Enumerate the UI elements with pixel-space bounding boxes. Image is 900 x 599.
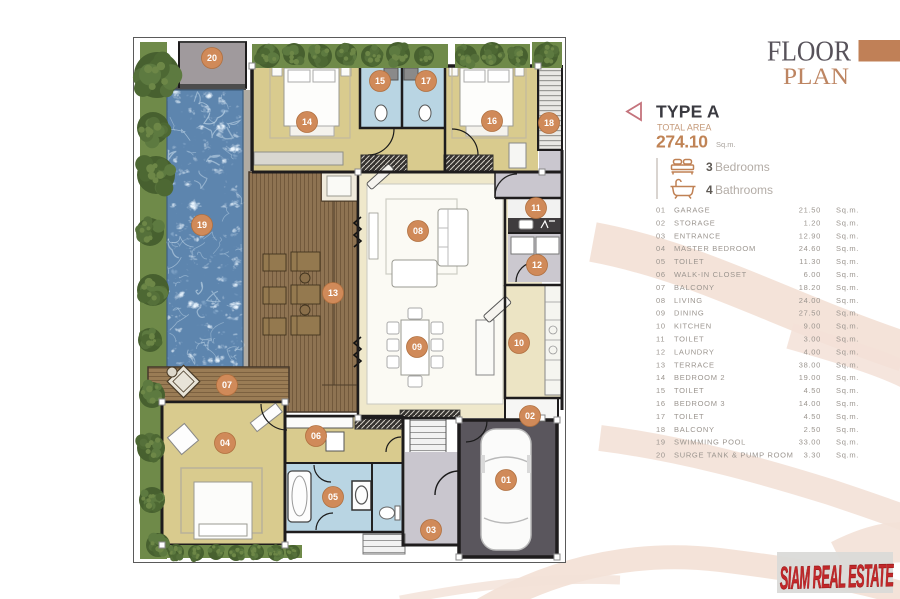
svg-text:12.90: 12.90	[799, 231, 821, 240]
svg-text:01: 01	[656, 206, 666, 215]
svg-text:16: 16	[656, 399, 666, 408]
svg-text:3.30: 3.30	[804, 451, 821, 460]
svg-text:Sq.m.: Sq.m.	[836, 296, 859, 305]
svg-text:TOILET: TOILET	[674, 335, 704, 344]
svg-text:33.00: 33.00	[799, 438, 821, 447]
svg-text:Bedrooms: Bedrooms	[715, 160, 770, 174]
svg-text:SWIMMING POOL: SWIMMING POOL	[674, 438, 746, 447]
svg-text:02: 02	[525, 411, 535, 421]
svg-text:Sq.m.: Sq.m.	[836, 412, 859, 421]
svg-text:05: 05	[328, 492, 338, 502]
svg-text:24.60: 24.60	[799, 244, 821, 253]
svg-text:Sq.m.: Sq.m.	[836, 347, 859, 356]
svg-text:03: 03	[426, 525, 436, 535]
svg-text:16: 16	[487, 116, 497, 126]
svg-text:GARAGE: GARAGE	[674, 206, 710, 215]
svg-text:09: 09	[656, 309, 666, 318]
svg-text:Bathrooms: Bathrooms	[715, 183, 773, 197]
svg-text:TERRACE: TERRACE	[674, 360, 715, 369]
svg-text:09: 09	[412, 342, 422, 352]
svg-text:Sq.m.: Sq.m.	[836, 322, 859, 331]
svg-text:07: 07	[656, 283, 666, 292]
svg-text:TOILET: TOILET	[674, 412, 704, 421]
svg-text:TOILET: TOILET	[674, 386, 704, 395]
svg-text:BEDROOM 3: BEDROOM 3	[674, 399, 725, 408]
svg-text:9.00: 9.00	[804, 322, 821, 331]
svg-text:6.00: 6.00	[804, 270, 821, 279]
svg-text:14: 14	[656, 373, 666, 382]
svg-text:01: 01	[501, 475, 511, 485]
svg-text:18: 18	[656, 425, 666, 434]
svg-text:20: 20	[207, 53, 217, 63]
svg-text:PLAN: PLAN	[783, 64, 849, 89]
svg-text:Sq.m.: Sq.m.	[836, 244, 859, 253]
svg-text:04: 04	[220, 438, 230, 448]
svg-text:TOILET: TOILET	[674, 257, 704, 266]
svg-text:13: 13	[328, 288, 338, 298]
svg-text:17: 17	[421, 76, 431, 86]
svg-text:1.20: 1.20	[804, 218, 821, 227]
svg-text:4.50: 4.50	[804, 412, 821, 421]
svg-text:18.20: 18.20	[799, 283, 821, 292]
svg-text:LAUNDRY: LAUNDRY	[674, 347, 715, 356]
svg-text:BALCONY: BALCONY	[674, 425, 715, 434]
svg-text:19: 19	[197, 220, 207, 230]
svg-text:18: 18	[544, 118, 554, 128]
svg-text:21.50: 21.50	[799, 206, 821, 215]
svg-text:Sq.m.: Sq.m.	[836, 386, 859, 395]
svg-text:LIVING: LIVING	[674, 296, 703, 305]
svg-text:05: 05	[656, 257, 666, 266]
svg-text:27.50: 27.50	[799, 309, 821, 318]
svg-text:12: 12	[532, 260, 542, 270]
svg-text:Sq.m.: Sq.m.	[836, 360, 859, 369]
svg-text:ENTRANCE: ENTRANCE	[674, 231, 721, 240]
svg-text:2.50: 2.50	[804, 425, 821, 434]
svg-text:15: 15	[375, 76, 385, 86]
svg-text:MASTER BEDROOM: MASTER BEDROOM	[674, 244, 756, 253]
svg-text:14.00: 14.00	[799, 399, 821, 408]
svg-text:WALK-IN CLOSET: WALK-IN CLOSET	[674, 270, 747, 279]
svg-text:Sq.m.: Sq.m.	[836, 425, 859, 434]
svg-text:11: 11	[656, 335, 665, 344]
svg-text:20: 20	[656, 451, 666, 460]
svg-text:FLOOR: FLOOR	[767, 36, 852, 68]
svg-text:Sq.m.: Sq.m.	[836, 231, 859, 240]
svg-text:DINING: DINING	[674, 309, 704, 318]
svg-text:Sq.m.: Sq.m.	[716, 140, 736, 149]
svg-text:STORAGE: STORAGE	[674, 218, 715, 227]
svg-text:Sq.m.: Sq.m.	[836, 257, 859, 266]
svg-text:17: 17	[656, 412, 666, 421]
svg-text:07: 07	[222, 380, 232, 390]
svg-text:Sq.m.: Sq.m.	[836, 309, 859, 318]
svg-text:274.10: 274.10	[656, 132, 708, 152]
svg-text:Sq.m.: Sq.m.	[836, 270, 859, 279]
svg-text:3: 3	[706, 160, 713, 174]
svg-text:14: 14	[302, 117, 312, 127]
svg-text:Sq.m.: Sq.m.	[836, 218, 859, 227]
svg-text:19: 19	[656, 438, 666, 447]
svg-text:KITCHEN: KITCHEN	[674, 322, 712, 331]
svg-text:BALCONY: BALCONY	[674, 283, 715, 292]
svg-text:08: 08	[413, 226, 423, 236]
svg-text:Sq.m.: Sq.m.	[836, 373, 859, 382]
svg-text:24.00: 24.00	[799, 296, 821, 305]
svg-text:19.00: 19.00	[799, 373, 821, 382]
svg-text:10: 10	[656, 322, 666, 331]
svg-text:15: 15	[656, 386, 666, 395]
svg-text:06: 06	[656, 270, 666, 279]
svg-text:3.00: 3.00	[804, 335, 821, 344]
svg-text:TYPE A: TYPE A	[656, 102, 720, 122]
svg-text:04: 04	[656, 244, 666, 253]
svg-text:Sq.m.: Sq.m.	[836, 399, 859, 408]
svg-text:10: 10	[514, 338, 524, 348]
svg-text:11: 11	[531, 203, 541, 213]
svg-text:02: 02	[656, 218, 666, 227]
svg-text:Sq.m.: Sq.m.	[836, 451, 859, 460]
svg-text:38.00: 38.00	[799, 360, 821, 369]
svg-text:06: 06	[311, 431, 321, 441]
svg-text:12: 12	[656, 347, 666, 356]
svg-text:Sq.m.: Sq.m.	[836, 438, 859, 447]
svg-text:08: 08	[656, 296, 666, 305]
svg-text:13: 13	[656, 360, 666, 369]
svg-text:SIAM REAL ESTATE: SIAM REAL ESTATE	[779, 558, 894, 596]
svg-text:SURGE TANK & PUMP ROOM: SURGE TANK & PUMP ROOM	[674, 451, 794, 460]
svg-text:4.00: 4.00	[804, 347, 821, 356]
svg-text:Sq.m.: Sq.m.	[836, 335, 859, 344]
svg-text:11.30: 11.30	[799, 257, 821, 266]
svg-text:BEDROOM 2: BEDROOM 2	[674, 373, 725, 382]
svg-text:4.50: 4.50	[804, 386, 821, 395]
svg-text:4: 4	[706, 183, 713, 197]
svg-text:Sq.m.: Sq.m.	[836, 206, 859, 215]
svg-text:Sq.m.: Sq.m.	[836, 283, 859, 292]
svg-text:03: 03	[656, 231, 666, 240]
